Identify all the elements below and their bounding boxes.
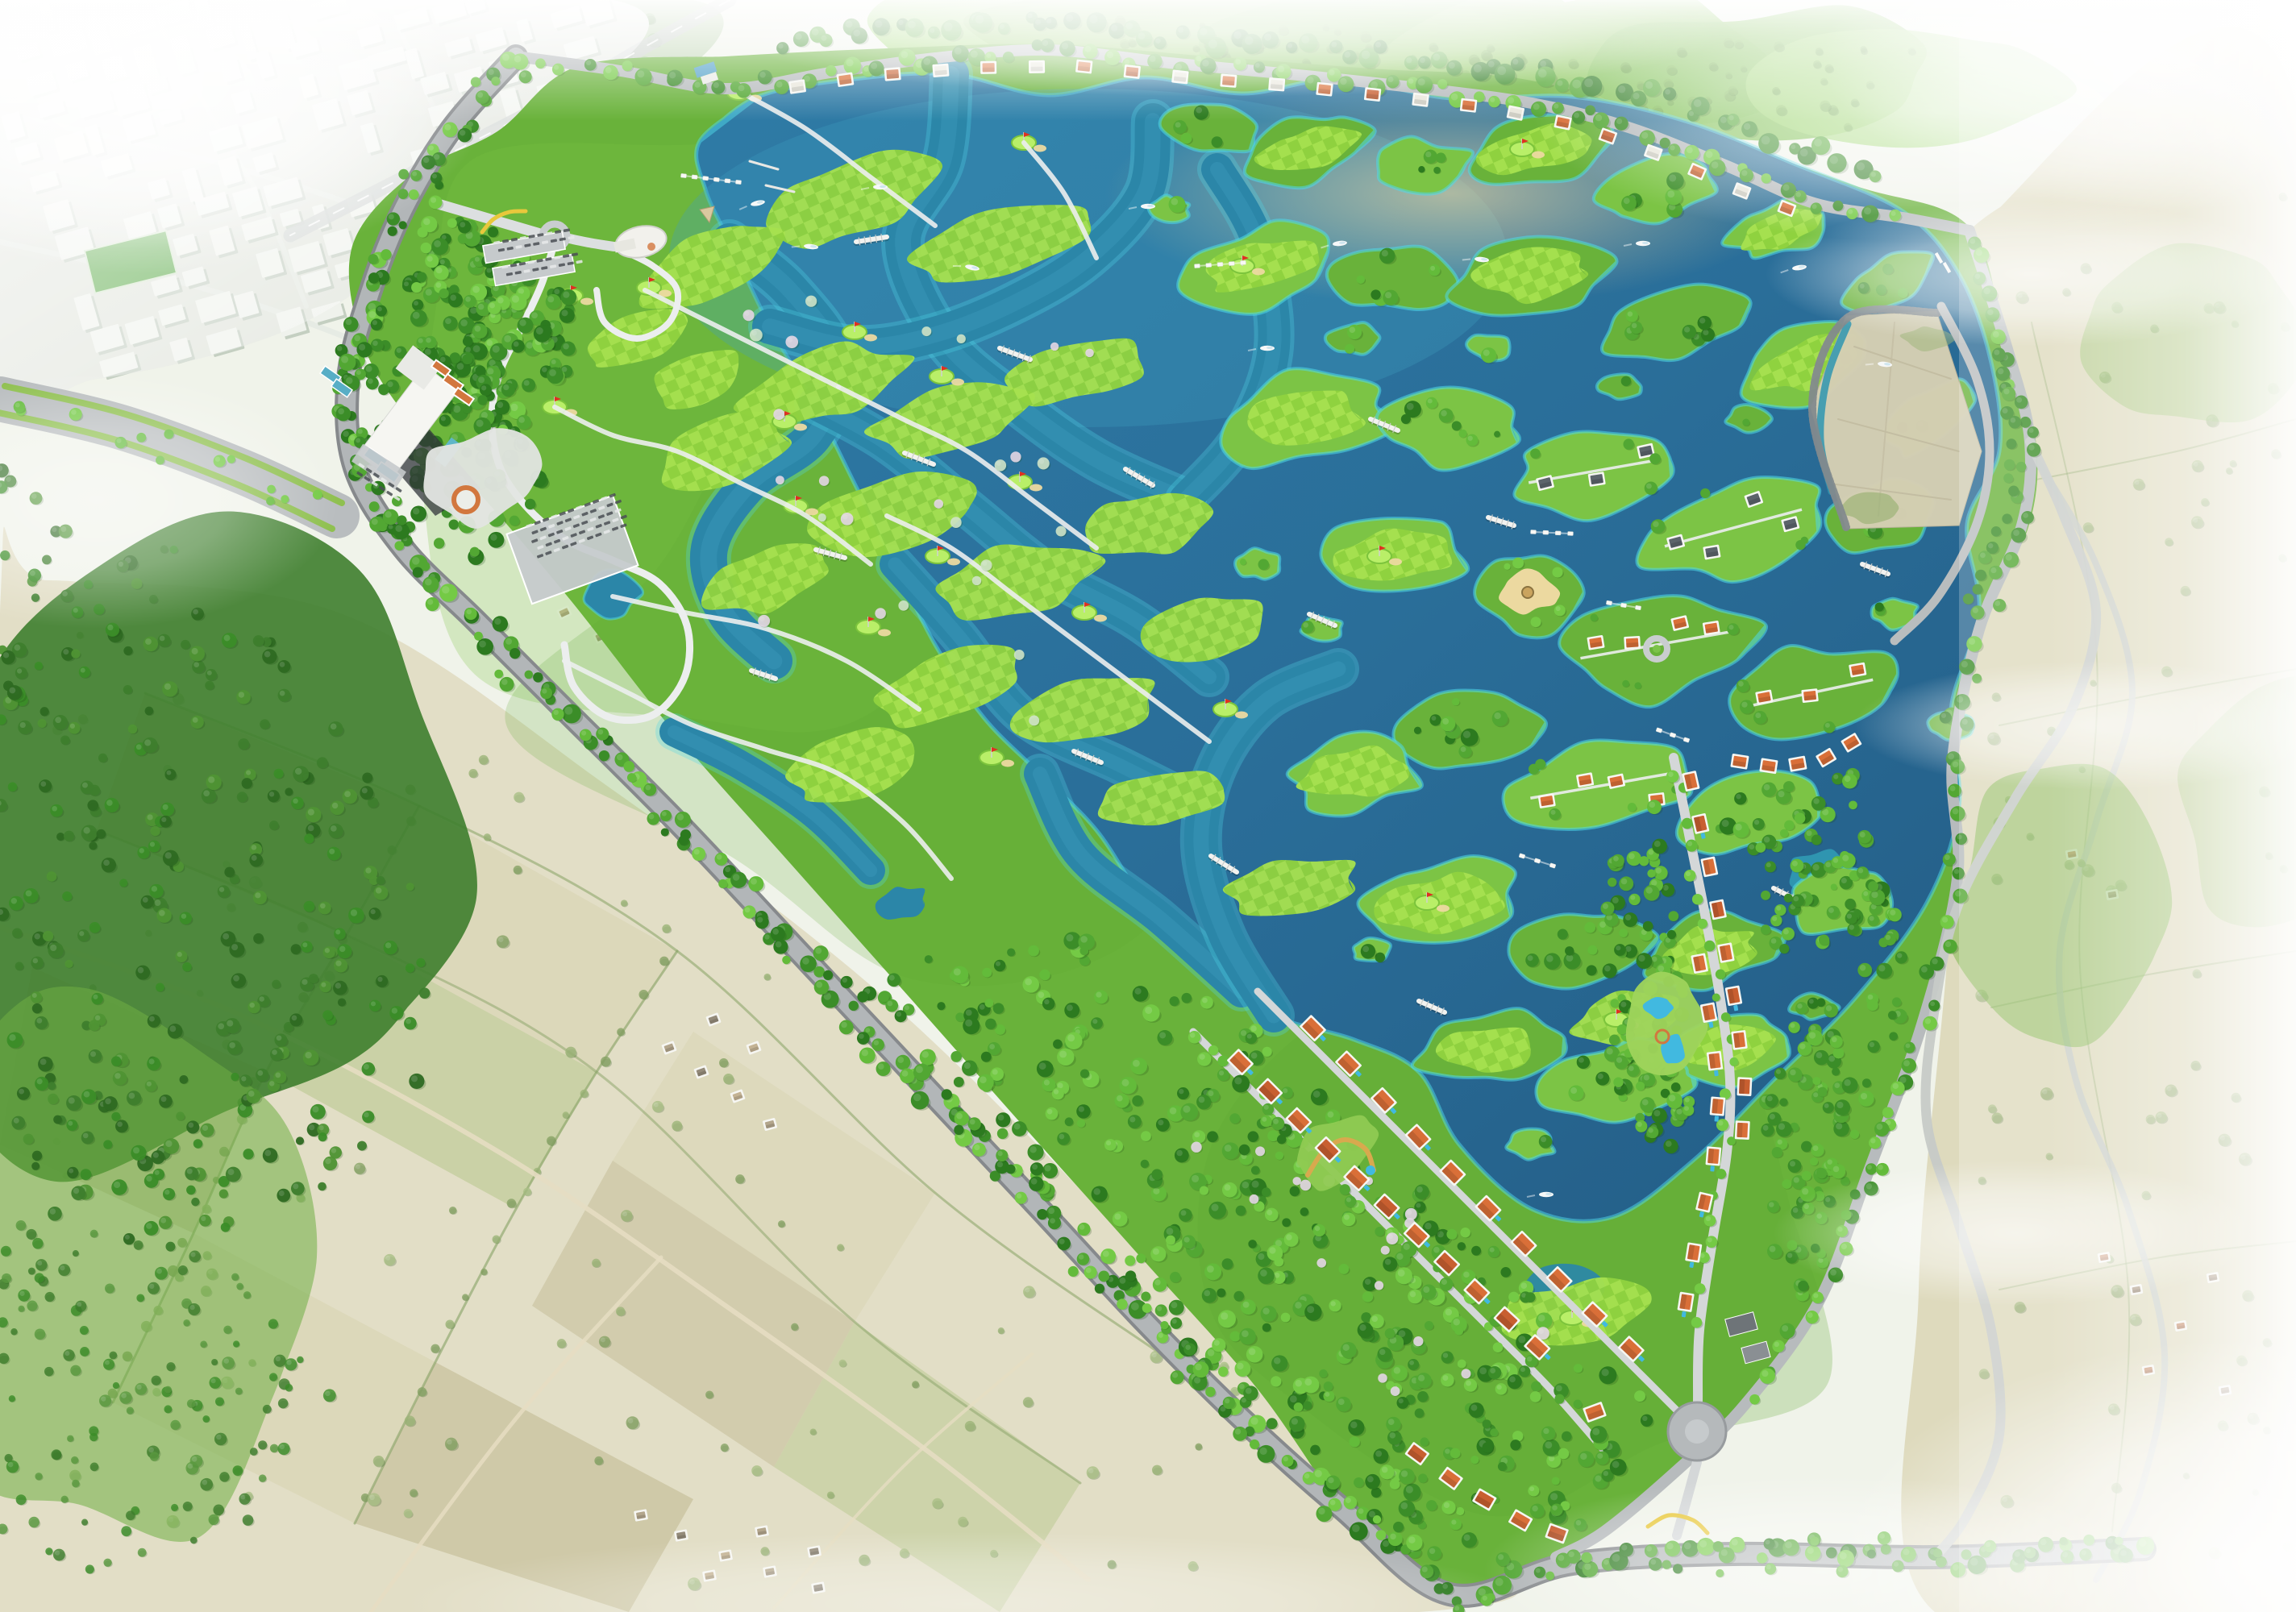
isl	[1327, 247, 1458, 310]
haze-right-wash	[1959, 0, 2296, 1612]
spiral-pavilion	[454, 488, 478, 512]
masterplan-stage	[0, 0, 2296, 1612]
isl	[1354, 938, 1391, 963]
resort-masterplan-rendering	[0, 0, 2296, 1612]
isl	[1321, 518, 1468, 592]
east-roundabout	[1646, 638, 1667, 659]
dragon-garden-pond	[1366, 1165, 1375, 1175]
south-roundabout-center	[1685, 1419, 1709, 1444]
clubhouse-dot	[647, 243, 655, 251]
